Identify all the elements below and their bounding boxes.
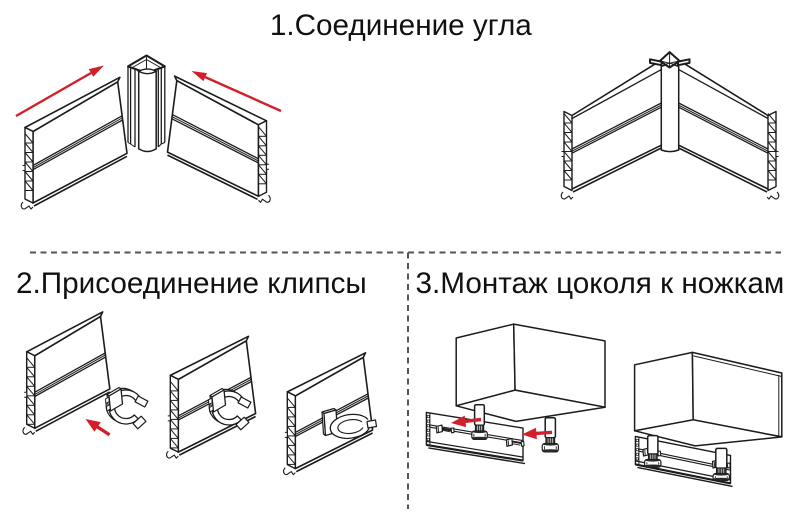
svg-text:3.Монтаж цоколя к ножкам: 3.Монтаж цоколя к ножкам [416,267,785,300]
svg-text:1.Соединение угла: 1.Соединение угла [270,9,532,42]
svg-text:2.Присоединение клипсы: 2.Присоединение клипсы [16,267,367,300]
